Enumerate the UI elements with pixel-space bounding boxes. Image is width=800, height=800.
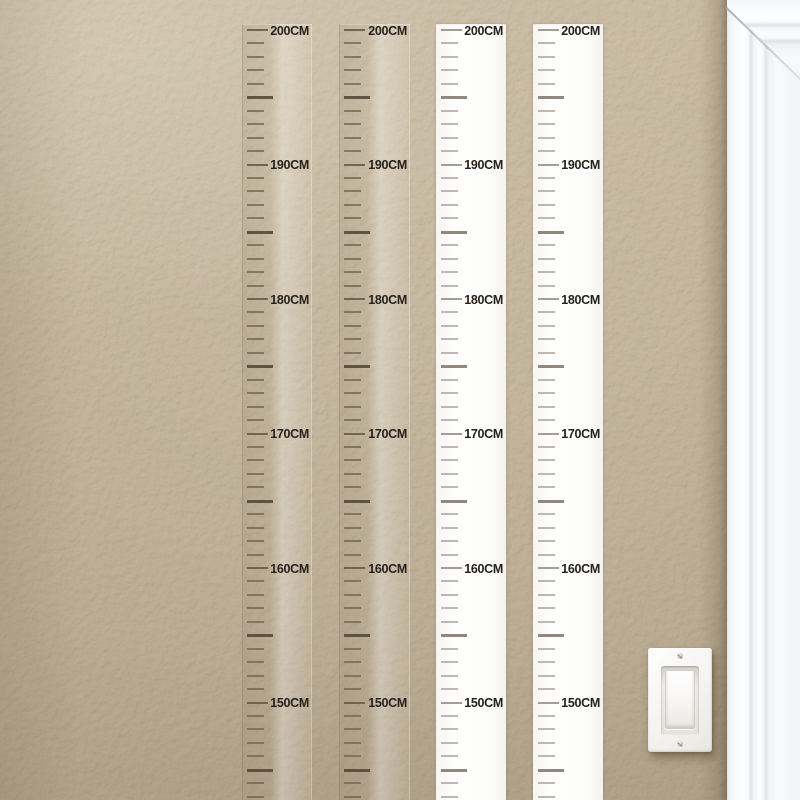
tick-177cm xyxy=(247,338,264,340)
tick-143cm xyxy=(538,796,555,798)
tick-193cm xyxy=(441,123,458,125)
tick-197cm xyxy=(247,69,264,71)
tick-189cm xyxy=(247,177,264,179)
tick-150cm xyxy=(247,702,268,704)
tick-190cm xyxy=(247,164,268,166)
tick-149cm xyxy=(247,715,264,717)
tick-196cm xyxy=(344,83,361,85)
tick-183cm xyxy=(344,258,361,260)
tick-196cm xyxy=(247,83,264,85)
tick-144cm xyxy=(538,782,555,784)
ruler-label-170cm: 170CM xyxy=(270,428,309,441)
tick-164cm xyxy=(441,513,458,515)
tick-168cm xyxy=(538,459,555,461)
ruler-label-150cm: 150CM xyxy=(561,697,600,710)
tick-196cm xyxy=(441,83,458,85)
tick-164cm xyxy=(344,513,361,515)
tick-175cm xyxy=(247,365,273,368)
tick-152cm xyxy=(344,675,361,677)
tick-181cm xyxy=(247,285,264,287)
tick-149cm xyxy=(441,715,458,717)
ruler-label-180cm: 180CM xyxy=(561,293,600,306)
tick-179cm xyxy=(538,311,555,313)
tick-153cm xyxy=(441,661,458,663)
tick-170cm xyxy=(247,433,268,435)
tick-143cm xyxy=(247,796,264,798)
tick-146cm xyxy=(538,755,555,757)
tick-199cm xyxy=(538,42,555,44)
tick-176cm xyxy=(247,352,264,354)
tick-200cm xyxy=(441,29,462,31)
tick-150cm xyxy=(441,702,462,704)
tick-167cm xyxy=(247,473,264,475)
tick-156cm xyxy=(344,621,361,623)
tick-155cm xyxy=(441,634,467,637)
door-casing xyxy=(727,0,800,800)
tick-153cm xyxy=(344,661,361,663)
tick-166cm xyxy=(441,486,458,488)
tick-181cm xyxy=(441,285,458,287)
tick-179cm xyxy=(441,311,458,313)
screw-slot-icon xyxy=(677,654,682,659)
tick-177cm xyxy=(441,338,458,340)
tick-161cm xyxy=(441,554,458,556)
tick-161cm xyxy=(344,554,361,556)
tick-193cm xyxy=(247,123,264,125)
tick-179cm xyxy=(344,311,361,313)
tick-172cm xyxy=(441,406,458,408)
tick-175cm xyxy=(441,365,467,368)
tick-187cm xyxy=(344,204,361,206)
wall: 200CM190CM180CM170CM160CM150CM200CM190CM… xyxy=(0,0,800,800)
tick-190cm xyxy=(441,164,462,166)
tick-166cm xyxy=(247,486,264,488)
tick-163cm xyxy=(247,527,264,529)
tick-156cm xyxy=(538,621,555,623)
tick-157cm xyxy=(538,607,555,609)
tick-192cm xyxy=(344,137,361,139)
tick-183cm xyxy=(441,258,458,260)
tick-192cm xyxy=(247,137,264,139)
tick-160cm xyxy=(344,567,365,569)
tick-197cm xyxy=(538,69,555,71)
tick-176cm xyxy=(441,352,458,354)
tick-146cm xyxy=(441,755,458,757)
tick-160cm xyxy=(441,567,462,569)
tick-190cm xyxy=(344,164,365,166)
tick-174cm xyxy=(538,379,555,381)
tick-147cm xyxy=(247,742,264,744)
switch-rocker-frame xyxy=(661,666,699,735)
switch-screw-bottom xyxy=(677,741,683,747)
tick-186cm xyxy=(247,217,264,219)
tick-192cm xyxy=(441,137,458,139)
tick-199cm xyxy=(344,42,361,44)
ruler-label-200cm: 200CM xyxy=(464,24,503,37)
tick-182cm xyxy=(247,271,264,273)
tick-169cm xyxy=(538,446,555,448)
tick-149cm xyxy=(344,715,361,717)
tick-158cm xyxy=(441,594,458,596)
tick-159cm xyxy=(538,580,555,582)
tick-193cm xyxy=(344,123,361,125)
ruler-label-180cm: 180CM xyxy=(270,293,309,306)
ruler-label-160cm: 160CM xyxy=(561,562,600,575)
tick-171cm xyxy=(441,419,458,421)
tick-157cm xyxy=(344,607,361,609)
tick-161cm xyxy=(247,554,264,556)
tick-195cm xyxy=(538,96,564,99)
tick-166cm xyxy=(538,486,555,488)
tick-148cm xyxy=(247,728,264,730)
ruler-label-190cm: 190CM xyxy=(270,159,309,172)
tick-196cm xyxy=(538,83,555,85)
tick-167cm xyxy=(344,473,361,475)
tick-169cm xyxy=(247,446,264,448)
tick-200cm xyxy=(247,29,268,31)
tick-173cm xyxy=(247,392,264,394)
tick-145cm xyxy=(441,769,467,772)
tick-144cm xyxy=(247,782,264,784)
tick-194cm xyxy=(441,110,458,112)
tick-165cm xyxy=(344,500,370,503)
tick-183cm xyxy=(538,258,555,260)
tick-173cm xyxy=(538,392,555,394)
tick-189cm xyxy=(344,177,361,179)
tick-174cm xyxy=(247,379,264,381)
tick-173cm xyxy=(344,392,361,394)
tick-191cm xyxy=(538,150,555,152)
ruler-label-200cm: 200CM xyxy=(270,24,309,37)
tick-194cm xyxy=(247,110,264,112)
tick-200cm xyxy=(344,29,365,31)
ruler-label-200cm: 200CM xyxy=(561,24,600,37)
screw-slot-icon xyxy=(677,742,682,747)
tick-153cm xyxy=(247,661,264,663)
tick-157cm xyxy=(247,607,264,609)
tick-171cm xyxy=(344,419,361,421)
tick-195cm xyxy=(247,96,273,99)
switch-rocker xyxy=(665,670,695,729)
tick-197cm xyxy=(441,69,458,71)
tick-184cm xyxy=(441,244,458,246)
tick-154cm xyxy=(538,648,555,650)
tick-148cm xyxy=(441,728,458,730)
tick-160cm xyxy=(538,567,559,569)
ruler-label-180cm: 180CM xyxy=(464,293,503,306)
tick-182cm xyxy=(441,271,458,273)
tick-158cm xyxy=(538,594,555,596)
ruler-label-180cm: 180CM xyxy=(368,293,407,306)
tick-164cm xyxy=(247,513,264,515)
tick-178cm xyxy=(538,325,555,327)
ruler-label-200cm: 200CM xyxy=(368,24,407,37)
tick-187cm xyxy=(247,204,264,206)
tick-156cm xyxy=(441,621,458,623)
tick-168cm xyxy=(247,459,264,461)
tick-146cm xyxy=(247,755,264,757)
tick-145cm xyxy=(344,769,370,772)
ruler-label-190cm: 190CM xyxy=(464,159,503,172)
tick-151cm xyxy=(344,688,361,690)
tick-176cm xyxy=(538,352,555,354)
tick-161cm xyxy=(538,554,555,556)
tick-175cm xyxy=(538,365,564,368)
tick-163cm xyxy=(538,527,555,529)
tick-148cm xyxy=(344,728,361,730)
tick-188cm xyxy=(247,190,264,192)
tick-150cm xyxy=(344,702,365,704)
tick-193cm xyxy=(538,123,555,125)
tick-151cm xyxy=(441,688,458,690)
tick-186cm xyxy=(538,217,555,219)
tick-144cm xyxy=(441,782,458,784)
tick-180cm xyxy=(441,298,462,300)
tick-189cm xyxy=(441,177,458,179)
tick-168cm xyxy=(344,459,361,461)
tick-149cm xyxy=(538,715,555,717)
ruler-label-190cm: 190CM xyxy=(368,159,407,172)
tick-198cm xyxy=(344,56,361,58)
tick-155cm xyxy=(344,634,370,637)
tick-178cm xyxy=(441,325,458,327)
tick-187cm xyxy=(538,204,555,206)
tick-199cm xyxy=(441,42,458,44)
tick-162cm xyxy=(344,540,361,542)
tick-164cm xyxy=(538,513,555,515)
ruler-label-150cm: 150CM xyxy=(464,697,503,710)
tick-185cm xyxy=(441,231,467,234)
tick-155cm xyxy=(538,634,564,637)
tick-182cm xyxy=(344,271,361,273)
tick-179cm xyxy=(247,311,264,313)
tick-177cm xyxy=(344,338,361,340)
tick-184cm xyxy=(538,244,555,246)
tick-159cm xyxy=(441,580,458,582)
ruler-label-150cm: 150CM xyxy=(368,697,407,710)
tick-181cm xyxy=(344,285,361,287)
tick-184cm xyxy=(247,244,264,246)
tick-198cm xyxy=(441,56,458,58)
tick-143cm xyxy=(344,796,361,798)
tick-169cm xyxy=(441,446,458,448)
tick-174cm xyxy=(441,379,458,381)
growth-ruler-white-1: 200CM190CM180CM170CM160CM150CM xyxy=(436,24,506,800)
tick-170cm xyxy=(538,433,559,435)
tick-199cm xyxy=(247,42,264,44)
tick-167cm xyxy=(441,473,458,475)
ruler-label-160cm: 160CM xyxy=(368,562,407,575)
tick-185cm xyxy=(344,231,370,234)
tick-166cm xyxy=(344,486,361,488)
tick-171cm xyxy=(538,419,555,421)
tick-180cm xyxy=(538,298,559,300)
tick-177cm xyxy=(538,338,555,340)
tick-168cm xyxy=(441,459,458,461)
tick-190cm xyxy=(538,164,559,166)
tick-159cm xyxy=(247,580,264,582)
tick-165cm xyxy=(247,500,273,503)
tick-178cm xyxy=(344,325,361,327)
tick-151cm xyxy=(538,688,555,690)
tick-165cm xyxy=(538,500,564,503)
tick-163cm xyxy=(441,527,458,529)
tick-176cm xyxy=(344,352,361,354)
tick-195cm xyxy=(441,96,467,99)
tick-200cm xyxy=(538,29,559,31)
tick-191cm xyxy=(247,150,264,152)
tick-185cm xyxy=(247,231,273,234)
ruler-label-160cm: 160CM xyxy=(270,562,309,575)
tick-147cm xyxy=(441,742,458,744)
tick-194cm xyxy=(538,110,555,112)
tick-172cm xyxy=(538,406,555,408)
tick-187cm xyxy=(441,204,458,206)
tick-191cm xyxy=(441,150,458,152)
ruler-label-190cm: 190CM xyxy=(561,159,600,172)
tick-195cm xyxy=(344,96,370,99)
tick-158cm xyxy=(247,594,264,596)
tick-174cm xyxy=(344,379,361,381)
tick-144cm xyxy=(344,782,361,784)
tick-154cm xyxy=(247,648,264,650)
tick-170cm xyxy=(441,433,462,435)
tick-151cm xyxy=(247,688,264,690)
tick-148cm xyxy=(538,728,555,730)
tick-157cm xyxy=(441,607,458,609)
tick-198cm xyxy=(247,56,264,58)
tick-194cm xyxy=(344,110,361,112)
tick-197cm xyxy=(344,69,361,71)
tick-143cm xyxy=(441,796,458,798)
tick-189cm xyxy=(538,177,555,179)
tick-163cm xyxy=(344,527,361,529)
ruler-label-160cm: 160CM xyxy=(464,562,503,575)
tick-159cm xyxy=(344,580,361,582)
tick-147cm xyxy=(344,742,361,744)
tick-152cm xyxy=(538,675,555,677)
tick-192cm xyxy=(538,137,555,139)
tick-178cm xyxy=(247,325,264,327)
tick-155cm xyxy=(247,634,273,637)
tick-186cm xyxy=(441,217,458,219)
tick-175cm xyxy=(344,365,370,368)
light-switch-plate xyxy=(648,648,712,752)
ruler-label-170cm: 170CM xyxy=(368,428,407,441)
tick-165cm xyxy=(441,500,467,503)
tick-169cm xyxy=(344,446,361,448)
tick-153cm xyxy=(538,661,555,663)
tick-158cm xyxy=(344,594,361,596)
tick-188cm xyxy=(344,190,361,192)
tick-181cm xyxy=(538,285,555,287)
tick-162cm xyxy=(441,540,458,542)
growth-ruler-white-2: 200CM190CM180CM170CM160CM150CM xyxy=(533,24,603,800)
tick-145cm xyxy=(247,769,273,772)
growth-ruler-transparent-1: 200CM190CM180CM170CM160CM150CM xyxy=(242,24,312,800)
tick-170cm xyxy=(344,433,365,435)
tick-180cm xyxy=(247,298,268,300)
tick-172cm xyxy=(247,406,264,408)
tick-183cm xyxy=(247,258,264,260)
tick-154cm xyxy=(441,648,458,650)
ruler-label-150cm: 150CM xyxy=(270,697,309,710)
tick-171cm xyxy=(247,419,264,421)
ruler-label-170cm: 170CM xyxy=(464,428,503,441)
tick-145cm xyxy=(538,769,564,772)
tick-167cm xyxy=(538,473,555,475)
tick-146cm xyxy=(344,755,361,757)
tick-185cm xyxy=(538,231,564,234)
growth-ruler-transparent-2: 200CM190CM180CM170CM160CM150CM xyxy=(339,24,410,800)
tick-150cm xyxy=(538,702,559,704)
tick-162cm xyxy=(538,540,555,542)
ruler-label-170cm: 170CM xyxy=(561,428,600,441)
tick-162cm xyxy=(247,540,264,542)
switch-screw-top xyxy=(677,653,683,659)
tick-160cm xyxy=(247,567,268,569)
tick-191cm xyxy=(344,150,361,152)
tick-152cm xyxy=(441,675,458,677)
tick-188cm xyxy=(538,190,555,192)
tick-147cm xyxy=(538,742,555,744)
tick-154cm xyxy=(344,648,361,650)
tick-156cm xyxy=(247,621,264,623)
tick-198cm xyxy=(538,56,555,58)
tick-180cm xyxy=(344,298,365,300)
tick-182cm xyxy=(538,271,555,273)
tick-186cm xyxy=(344,217,361,219)
tick-188cm xyxy=(441,190,458,192)
tick-173cm xyxy=(441,392,458,394)
tick-184cm xyxy=(344,244,361,246)
tick-172cm xyxy=(344,406,361,408)
tick-152cm xyxy=(247,675,264,677)
